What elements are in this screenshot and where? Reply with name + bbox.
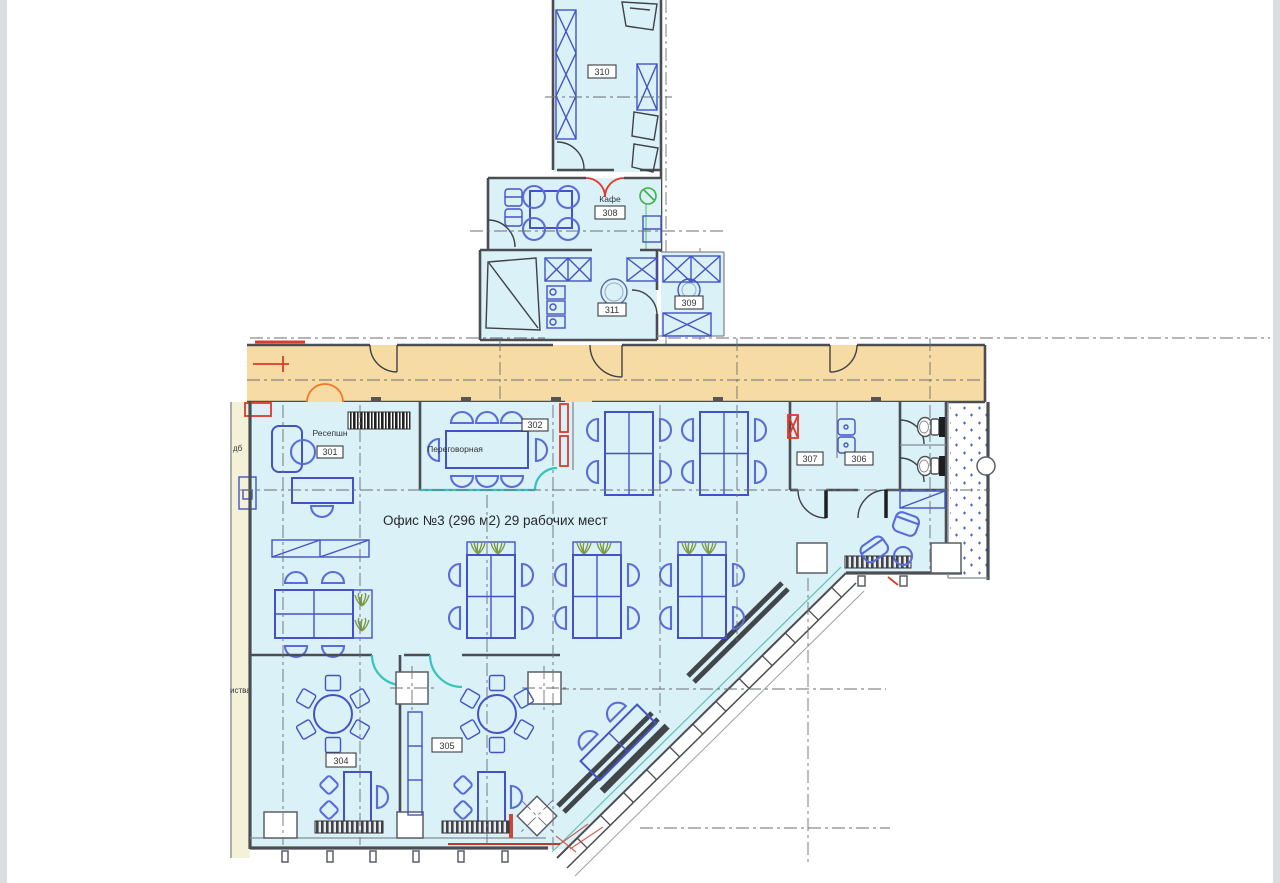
svg-text:308: 308 xyxy=(602,208,617,218)
room-308-label: 308 xyxy=(595,206,625,219)
pier xyxy=(397,812,423,838)
toilet xyxy=(918,456,946,476)
room-311-label: 311 xyxy=(598,303,626,316)
edge-text-fragment: иства xyxy=(230,686,251,695)
toilet xyxy=(918,417,946,437)
radiator xyxy=(442,821,509,833)
floor-plan-canvas: 310 Кафе 308 xyxy=(0,0,1280,883)
svg-text:301: 301 xyxy=(322,447,337,457)
room-302-label: 302 xyxy=(522,419,548,431)
office-title: Офис №3 (296 м2) 29 рабочих мест xyxy=(383,513,608,528)
meeting-name: Переговорная xyxy=(427,444,483,454)
left-edge-strip xyxy=(0,0,7,883)
svg-text:309: 309 xyxy=(681,298,696,308)
room-309-label: 309 xyxy=(675,296,703,309)
room-309: 309 xyxy=(657,252,724,336)
radiator xyxy=(315,821,383,833)
edge-text-fragment: дб xyxy=(233,444,243,453)
svg-text:306: 306 xyxy=(851,454,866,464)
room-304-label: 304 xyxy=(326,753,356,767)
exterior-wall-strip xyxy=(230,402,250,858)
floor-plan-page: 310 Кафе 308 xyxy=(0,0,1280,883)
room-306-label: 306 xyxy=(845,452,873,465)
svg-text:304: 304 xyxy=(333,756,348,766)
room-301-label: 301 xyxy=(317,446,343,458)
room-305-label: 305 xyxy=(432,738,462,752)
reception-name: Ресепшн xyxy=(312,428,347,438)
shelving xyxy=(348,412,410,429)
room-307-label: 307 xyxy=(797,452,823,465)
svg-text:310: 310 xyxy=(594,67,609,77)
svg-text:311: 311 xyxy=(605,305,619,315)
cafe-name: Кафе xyxy=(599,194,621,204)
pier xyxy=(264,812,297,838)
svg-text:305: 305 xyxy=(439,741,454,751)
svg-text:307: 307 xyxy=(802,454,817,464)
right-edge-strip xyxy=(1273,0,1280,883)
column xyxy=(977,457,995,475)
svg-text:302: 302 xyxy=(527,420,542,430)
room-310-label: 310 xyxy=(588,65,616,78)
